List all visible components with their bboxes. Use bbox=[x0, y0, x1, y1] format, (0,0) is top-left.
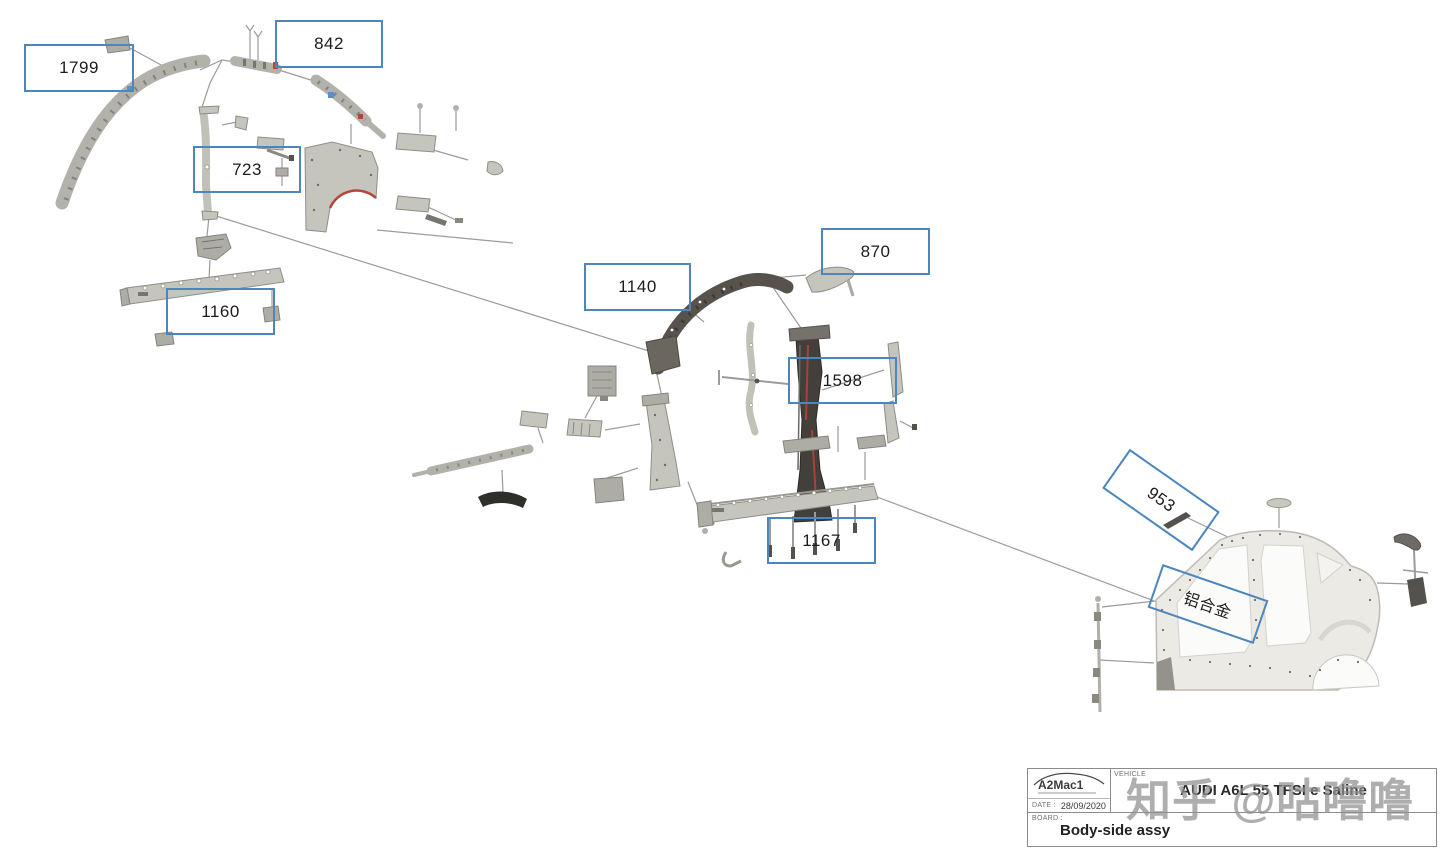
dimension-label-1160: 1160 bbox=[166, 288, 275, 335]
dimension-label-1598: 1598 bbox=[788, 357, 897, 404]
part-thin-strip bbox=[1092, 596, 1101, 712]
part-wavy-blade bbox=[749, 325, 755, 432]
part-rear-wheel-arch-panel bbox=[305, 142, 378, 232]
a2mac1-logo: A2Mac1 bbox=[1028, 769, 1110, 799]
exploded-view-canvas: 1799 842 723 1160 1140 870 1598 1167 953… bbox=[0, 0, 1440, 854]
dimension-label-1167: 1167 bbox=[767, 517, 876, 564]
part-pillar-foot-block bbox=[196, 234, 231, 260]
part-c-pillar-rail bbox=[316, 80, 383, 136]
dimension-label-842: 842 bbox=[275, 20, 383, 68]
logo-text: A2Mac1 bbox=[1038, 778, 1084, 792]
part-small-clip bbox=[235, 116, 248, 130]
board-label: BOARD : bbox=[1032, 815, 1063, 822]
part-rocker-extension bbox=[414, 449, 529, 475]
parts-artwork bbox=[0, 0, 1440, 854]
date-row: DATE : 28/09/2020 bbox=[1028, 799, 1110, 812]
part-antenna-disc bbox=[1267, 499, 1291, 508]
date-value: 28/09/2020 bbox=[1061, 801, 1106, 811]
dimension-label-1799: 1799 bbox=[24, 44, 134, 92]
part-small-pins-cluster bbox=[396, 103, 503, 226]
part-roof-bow bbox=[235, 59, 278, 69]
dimension-label-723: 723 bbox=[193, 146, 301, 193]
title-block-left: A2Mac1 DATE : 28/09/2020 bbox=[1028, 769, 1111, 813]
watermark-text: 知乎 @咕噜噜 bbox=[1126, 764, 1414, 829]
part-right-bracket-assembly bbox=[1394, 534, 1428, 607]
part-machined-block bbox=[588, 366, 616, 401]
dimension-label-1140: 1140 bbox=[584, 263, 691, 311]
date-label: DATE : bbox=[1032, 802, 1056, 809]
dimension-label-870: 870 bbox=[821, 228, 930, 275]
logo-graphic: A2Mac1 bbox=[1030, 770, 1108, 797]
